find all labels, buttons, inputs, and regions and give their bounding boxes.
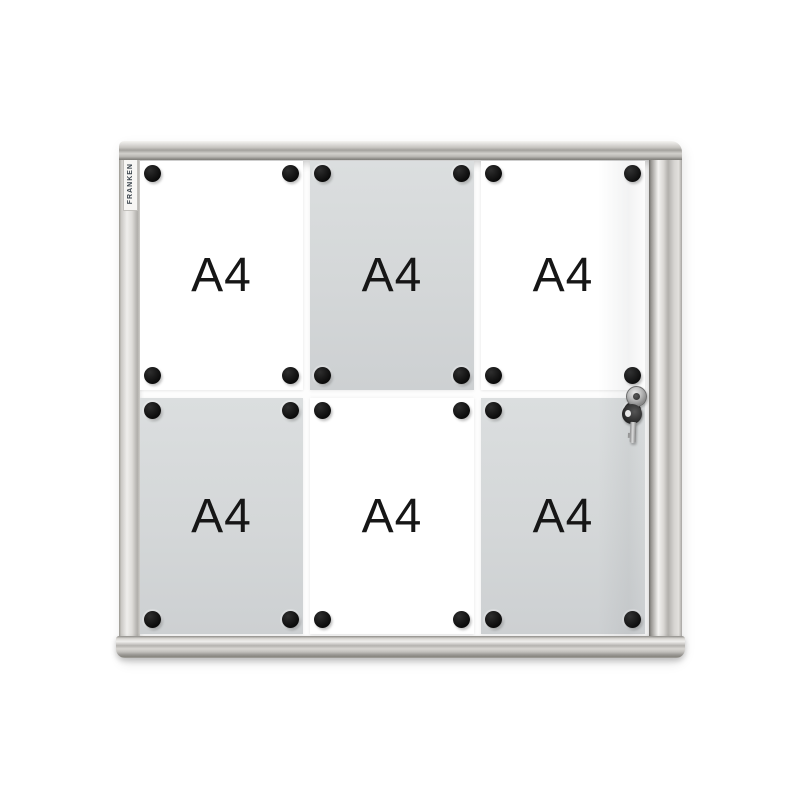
magnet-dot bbox=[453, 165, 470, 182]
magnet-dot bbox=[144, 165, 161, 182]
brand-text: FRANKEN bbox=[127, 163, 134, 204]
frame-bottom-rail bbox=[116, 636, 685, 658]
a4-sheet-r2c1: A4 bbox=[140, 398, 303, 634]
magnet-dot bbox=[282, 611, 299, 628]
magnet-dot bbox=[314, 165, 331, 182]
magnet-dot bbox=[314, 611, 331, 628]
magnet-dot bbox=[314, 367, 331, 384]
brand-label: FRANKEN bbox=[123, 157, 138, 211]
a4-size-label: A4 bbox=[362, 248, 423, 303]
notice-board: FRANKEN A4 A4 bbox=[119, 141, 682, 658]
magnet-dot bbox=[282, 367, 299, 384]
a4-size-label: A4 bbox=[533, 248, 594, 303]
frame-left-profile: FRANKEN bbox=[119, 144, 140, 655]
frame-top-rail bbox=[119, 141, 682, 160]
a4-size-label: A4 bbox=[533, 489, 594, 544]
a4-size-label: A4 bbox=[362, 489, 423, 544]
a4-sheet-r1c1: A4 bbox=[140, 161, 303, 390]
magnet-dot bbox=[144, 367, 161, 384]
magnet-dot bbox=[485, 165, 502, 182]
glass-front: A4 A4 A4 A4 bbox=[140, 160, 649, 636]
a4-sheet-r1c2: A4 bbox=[310, 161, 474, 390]
magnet-dot bbox=[453, 611, 470, 628]
magnet-dot bbox=[485, 611, 502, 628]
magnet-dot bbox=[314, 402, 331, 419]
magnet-dot bbox=[485, 402, 502, 419]
magnet-dot bbox=[453, 367, 470, 384]
magnet-dot bbox=[144, 611, 161, 628]
a4-sheet-r1c3: A4 bbox=[481, 161, 645, 390]
magnet-dot bbox=[485, 367, 502, 384]
magnet-dot bbox=[453, 402, 470, 419]
a4-sheet-r2c2: A4 bbox=[310, 398, 474, 634]
a4-size-label: A4 bbox=[191, 489, 252, 544]
frame-right-profile bbox=[649, 144, 682, 655]
magnet-dot bbox=[624, 165, 641, 182]
magnet-dot bbox=[624, 611, 641, 628]
magnet-dot bbox=[144, 402, 161, 419]
product-photo-scene: FRANKEN A4 A4 bbox=[0, 0, 800, 800]
key-shaft-icon bbox=[630, 422, 637, 443]
magnet-dot bbox=[282, 165, 299, 182]
a4-size-label: A4 bbox=[191, 248, 252, 303]
a4-sheet-r2c3: A4 bbox=[481, 398, 645, 634]
magnet-dot bbox=[624, 367, 641, 384]
magnet-dot bbox=[282, 402, 299, 419]
